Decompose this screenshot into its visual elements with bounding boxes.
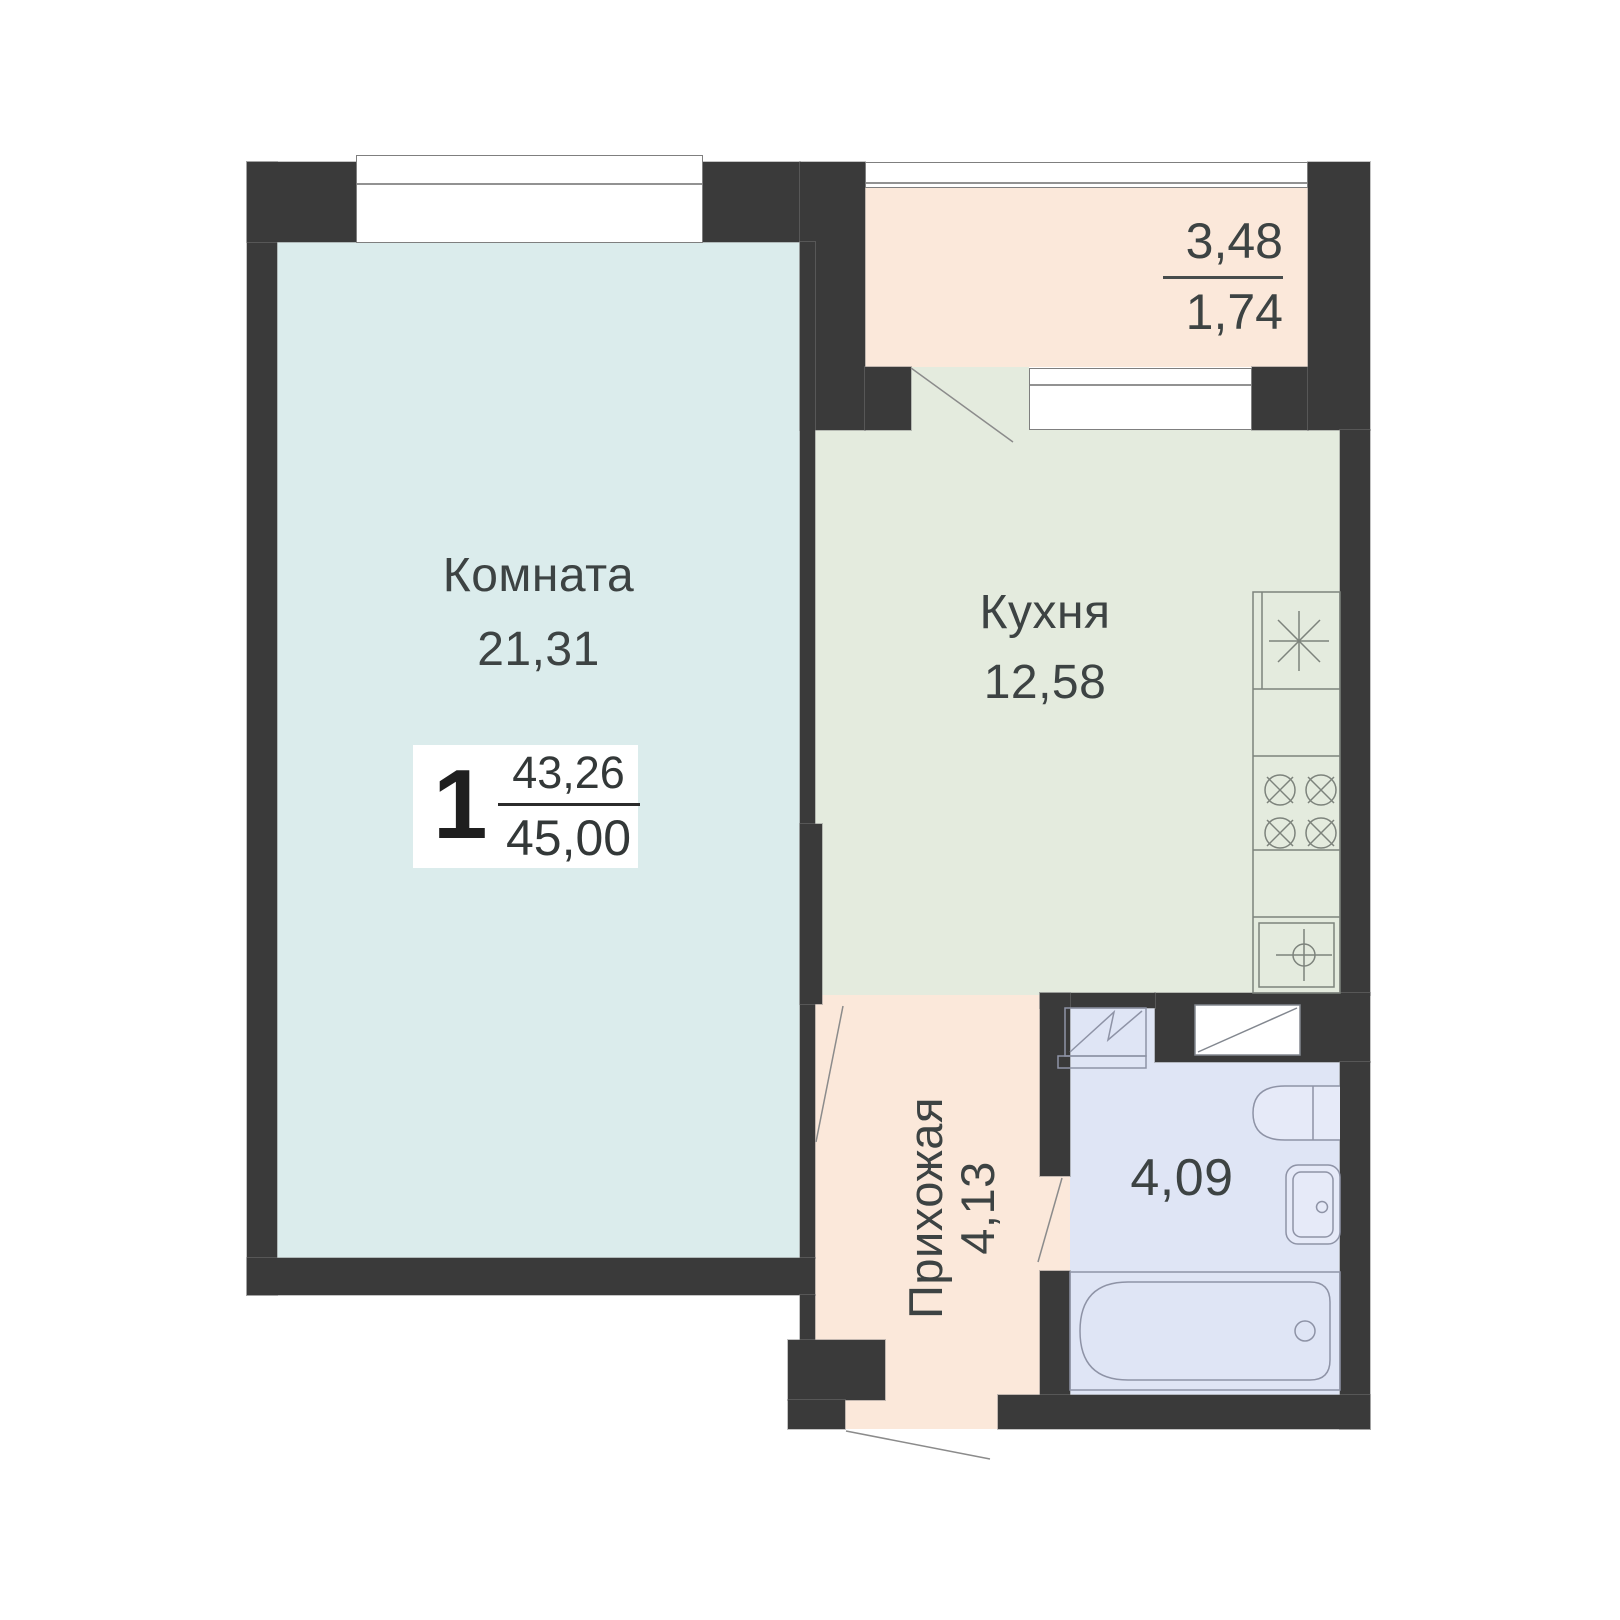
door-swing-living [816, 1006, 843, 1142]
door-swing-entry [846, 1431, 990, 1459]
washing-machine-icon [1058, 1008, 1146, 1068]
kitchen-label: Кухня [905, 585, 1185, 640]
stove-icon [1265, 775, 1336, 848]
kitchen-counter [1253, 592, 1340, 993]
hallway-name: Прихожая [899, 1097, 953, 1319]
door-swing-bathroom [1038, 1178, 1062, 1262]
living-room-label: Комната [277, 548, 800, 603]
kitchen-sink-icon [1259, 923, 1334, 987]
fridge-icon [1262, 592, 1329, 689]
balcony-area-reduced: 1,74 [1100, 283, 1283, 341]
bathroom-area-value: 4,09 [1082, 1148, 1282, 1208]
living-room-area-value: 21,31 [277, 622, 800, 677]
area-fraction-line [498, 803, 640, 806]
door-swing-balcony [911, 368, 1013, 442]
apartment-info-box: 1 43,26 45,00 [413, 745, 638, 868]
kitchen-area-value: 12,58 [905, 655, 1185, 710]
floor-plan: Комната 21,31 Кухня 12,58 3,48 1,74 Прих… [0, 0, 1620, 1620]
toilet-icon [1253, 1086, 1340, 1140]
living-area-total: 43,26 [512, 747, 625, 799]
washbasin-icon [1286, 1165, 1340, 1244]
total-area: 45,00 [506, 809, 631, 867]
balcony-area-total: 3,48 [1100, 212, 1283, 270]
balcony-fraction-line [1163, 276, 1283, 279]
vent-shaft-icon [1195, 1005, 1300, 1055]
balcony-areas: 3,48 1,74 [1100, 212, 1283, 341]
bathtub-icon [1070, 1272, 1340, 1390]
rooms-count: 1 [413, 755, 498, 859]
area-fraction: 43,26 45,00 [498, 747, 640, 867]
hallway-area-value: 4,13 [953, 1097, 1003, 1319]
hallway-label: Прихожая 4,13 [899, 1097, 1003, 1319]
